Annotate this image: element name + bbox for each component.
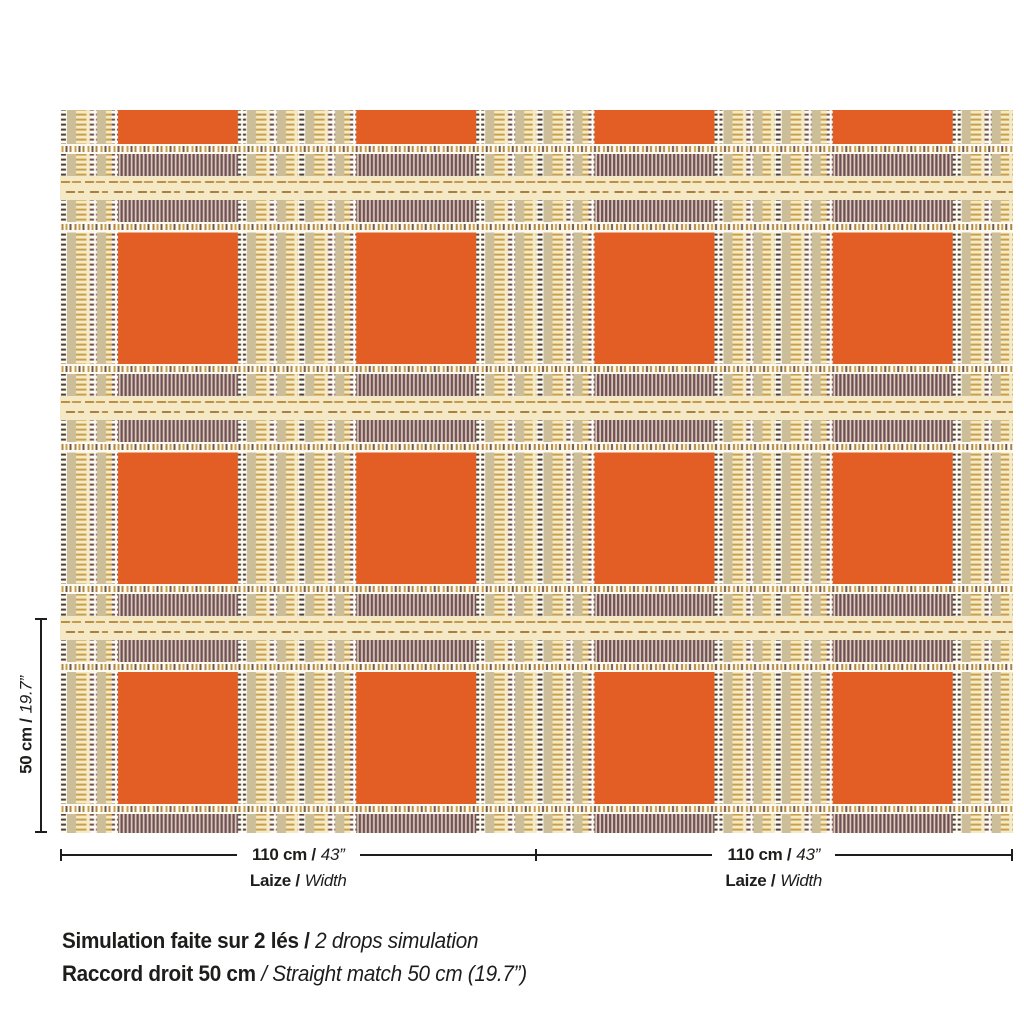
- width-word-en-1: Width: [305, 871, 347, 890]
- caption-line-2: Raccord droit 50 cm/ Straight match 50 c…: [62, 957, 527, 990]
- vertical-dimension-label: 50 cm /19.7”: [16, 618, 38, 833]
- horizontal-dimension-drop-1: 110 cm /43” Laize /Width: [60, 845, 537, 897]
- simulation-sheet: 50 cm /19.7” 110 cm /43” Laize /Width 1: [0, 0, 1024, 1024]
- vertical-dimension-imperial: 19.7”: [17, 676, 36, 713]
- caption-line-1: Simulation faite sur 2 lés /2 drops simu…: [62, 924, 527, 957]
- horizontal-dimension-label-1: 110 cm /43” Laize /Width: [237, 845, 360, 891]
- dimension-line-segment: [537, 854, 713, 856]
- horizontal-dimension-label-2: 110 cm /43” Laize /Width: [712, 845, 835, 891]
- caption-line-1-english: 2 drops simulation: [315, 928, 478, 953]
- dimension-line-segment: [835, 854, 1011, 856]
- caption: Simulation faite sur 2 lés /2 drops simu…: [62, 924, 567, 990]
- plaid-pattern-graphic: [60, 110, 1013, 833]
- width-imperial-1: 43”: [321, 845, 345, 864]
- width-word-en-2: Width: [780, 871, 822, 890]
- horizontal-dimensions: 110 cm /43” Laize /Width 110 cm /43” Lai…: [60, 845, 1013, 897]
- caption-line-2-english: / Straight match 50 cm (19.7”): [261, 961, 527, 986]
- wallpaper-pattern-swatch: [60, 110, 1013, 833]
- width-imperial-2: 43”: [796, 845, 820, 864]
- vertical-dimension-metric: 50 cm /: [17, 718, 36, 774]
- horizontal-dimension-drop-2: 110 cm /43” Laize /Width: [537, 845, 1014, 897]
- vertical-dimension-line: [40, 618, 42, 833]
- dimension-line-segment: [360, 854, 535, 856]
- width-metric-2: 110 cm /: [728, 845, 792, 864]
- width-word-fr-1: Laize /: [250, 871, 300, 890]
- caption-line-1-french: Simulation faite sur 2 lés /: [62, 928, 310, 953]
- dimension-end-cap: [1011, 849, 1013, 861]
- caption-line-2-french: Raccord droit 50 cm: [62, 961, 256, 986]
- dimension-line-segment: [62, 854, 237, 856]
- width-metric-1: 110 cm /: [252, 845, 316, 864]
- width-word-fr-2: Laize /: [725, 871, 775, 890]
